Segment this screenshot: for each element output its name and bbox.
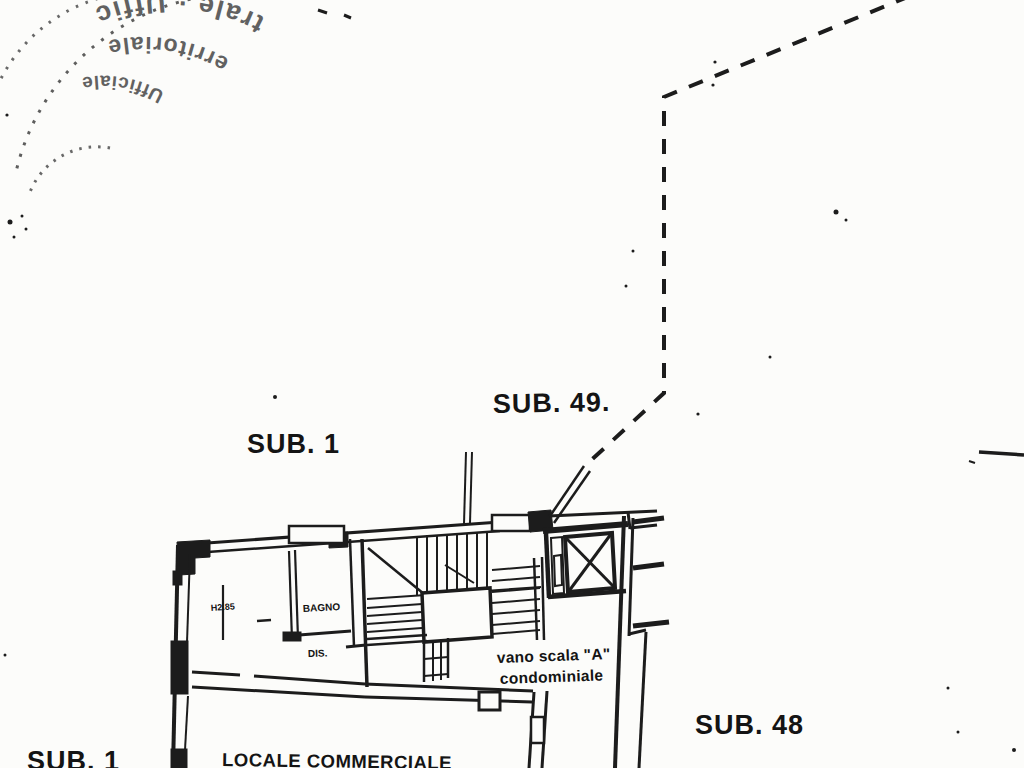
stamp-ring-middle-text: erritoriale [105, 32, 232, 78]
apartment-walls [171, 452, 657, 768]
window-top-2 [492, 515, 530, 531]
stair-landing [422, 588, 492, 642]
boundary-solid-spur-a [548, 466, 584, 519]
vano-scala-label-line2: condominiale [500, 666, 604, 687]
window-right-wall [531, 717, 544, 743]
right-edge-line-fragment [979, 452, 1024, 455]
door-notch [479, 692, 500, 710]
stair-diagonal [368, 548, 424, 594]
scanned-cadastral-plan: trale · Uffic erritoriale Ufficiale [0, 0, 1024, 768]
window-top-1 [289, 526, 344, 543]
wall-corner-pier [177, 540, 210, 575]
scan-noise-dashes [318, 10, 975, 463]
right-boundary-walls [615, 516, 669, 768]
stamp-ring-inner-text: Ufficiale [79, 72, 166, 108]
room-bagno-label: BAGNO [303, 601, 341, 614]
party-wall-spur [464, 452, 466, 524]
elevator-shaft [543, 524, 628, 598]
subaltern-labels: SUB. 49. SUB. 1 SUB. 48 SUB. 1 [27, 387, 804, 768]
floor-plan-drawing: trale · Uffic erritoriale Ufficiale [0, 0, 1024, 768]
stamp-ring-outer-text: trale · Uffic [89, 0, 268, 40]
sub-1-lower-label: SUB. 1 [27, 746, 120, 768]
vano-scala-label-line1: vano scala "A" [497, 645, 611, 666]
stamp-dotted-arc-middle [0, 0, 108, 122]
sub-49-label: SUB. 49. [493, 387, 611, 419]
sub-1-upper-label: SUB. 1 [247, 429, 340, 459]
sub-48-label: SUB. 48 [695, 710, 804, 740]
height-mark-dash [257, 620, 271, 621]
dashed-boundary-line [548, 0, 910, 523]
stamp-dotted-arc-inner [30, 147, 110, 192]
locale-commerciale-label: LOCALE COMMERCIALE [222, 749, 452, 768]
room-height-label: H2.85 [210, 601, 235, 613]
wall-foot [283, 632, 301, 641]
wall-pilaster [171, 641, 188, 694]
office-stamp: trale · Uffic erritoriale Ufficiale [0, 0, 268, 192]
room-dis-label: DIS. [308, 647, 328, 659]
